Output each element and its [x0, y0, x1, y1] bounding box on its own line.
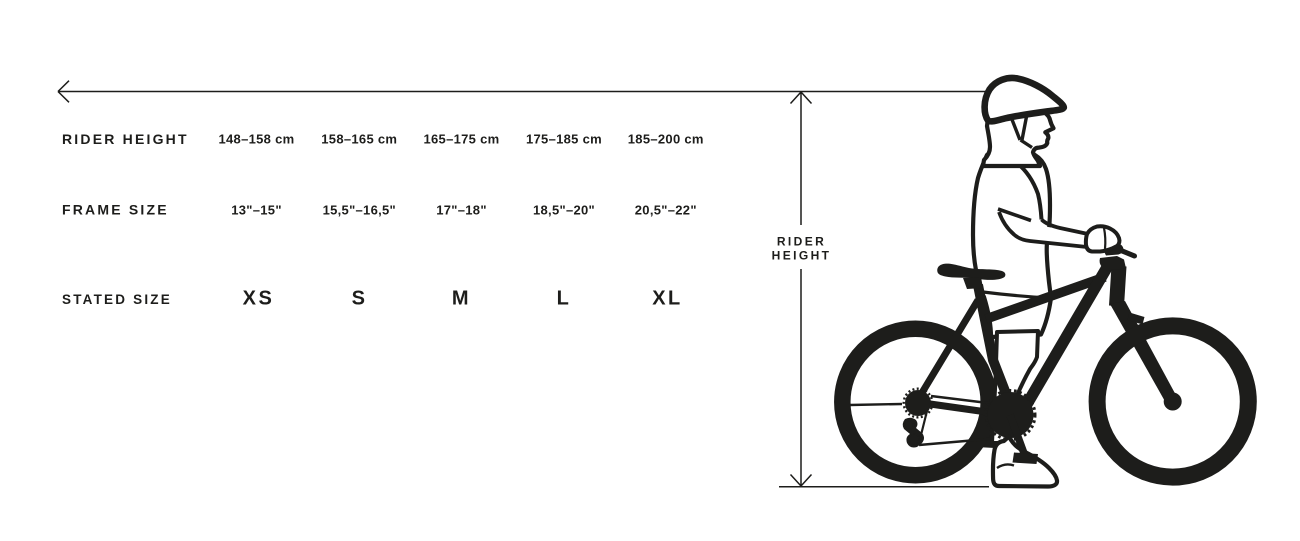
- svg-text:158–165 cm: 158–165 cm: [321, 132, 397, 147]
- svg-text:XS: XS: [243, 288, 275, 310]
- svg-text:L: L: [557, 288, 572, 310]
- svg-text:HEIGHT: HEIGHT: [772, 249, 832, 263]
- svg-text:13"–15": 13"–15": [231, 203, 282, 218]
- svg-text:M: M: [452, 288, 471, 310]
- svg-text:RIDER HEIGHT: RIDER HEIGHT: [62, 131, 189, 147]
- svg-text:XL: XL: [652, 288, 683, 310]
- svg-text:15,5"–16,5": 15,5"–16,5": [323, 203, 396, 218]
- svg-text:175–185 cm: 175–185 cm: [526, 132, 602, 147]
- svg-text:165–175 cm: 165–175 cm: [423, 132, 499, 147]
- svg-text:RIDER: RIDER: [777, 235, 826, 249]
- svg-text:185–200 cm: 185–200 cm: [628, 132, 704, 147]
- svg-text:STATED SIZE: STATED SIZE: [62, 292, 172, 307]
- svg-text:FRAME SIZE: FRAME SIZE: [62, 202, 169, 218]
- svg-text:148–158 cm: 148–158 cm: [218, 132, 294, 147]
- svg-text:17"–18": 17"–18": [436, 203, 487, 218]
- svg-text:S: S: [352, 288, 368, 310]
- svg-text:18,5"–20": 18,5"–20": [533, 203, 595, 218]
- svg-text:20,5"–22": 20,5"–22": [635, 203, 697, 218]
